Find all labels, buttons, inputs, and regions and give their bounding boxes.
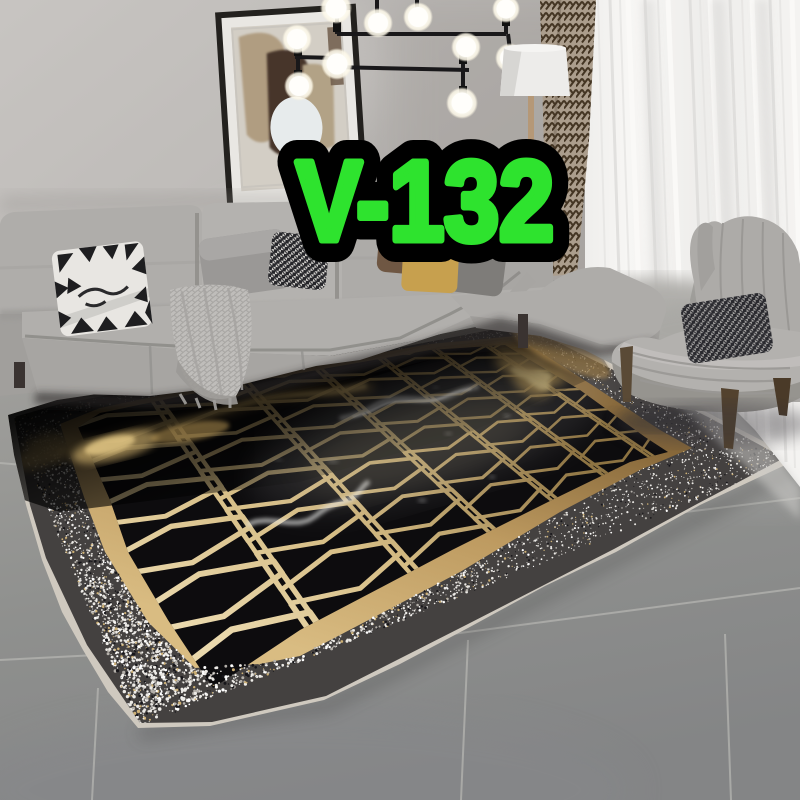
svg-text:V-132: V-132: [296, 138, 554, 264]
